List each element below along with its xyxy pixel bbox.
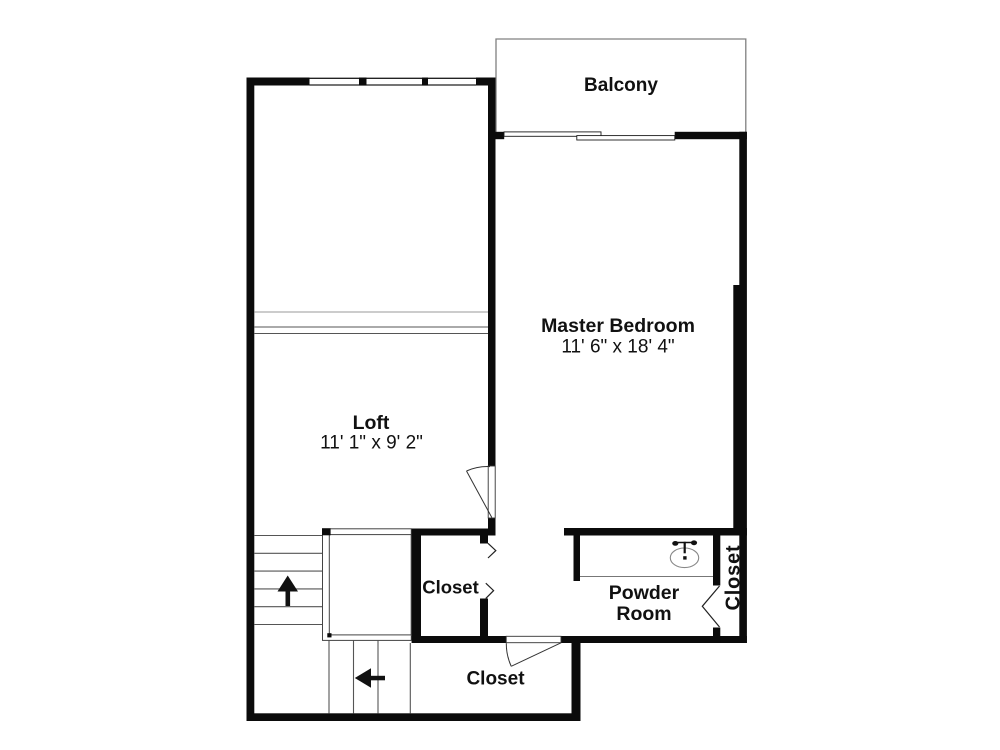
svg-text:Loft: Loft [353, 412, 390, 434]
svg-text:Balcony: Balcony [584, 75, 658, 96]
svg-text:Closet: Closet [466, 669, 525, 690]
svg-text:Master Bedroom: Master Bedroom [541, 315, 695, 337]
svg-text:11' 1" x 9' 2": 11' 1" x 9' 2" [320, 433, 423, 454]
svg-text:Closet: Closet [422, 577, 479, 598]
svg-text:11' 6" x 18' 4": 11' 6" x 18' 4" [561, 337, 674, 358]
svg-text:Room: Room [616, 603, 671, 625]
svg-text:Powder: Powder [609, 582, 680, 604]
svg-text:Closet: Closet [723, 545, 745, 611]
